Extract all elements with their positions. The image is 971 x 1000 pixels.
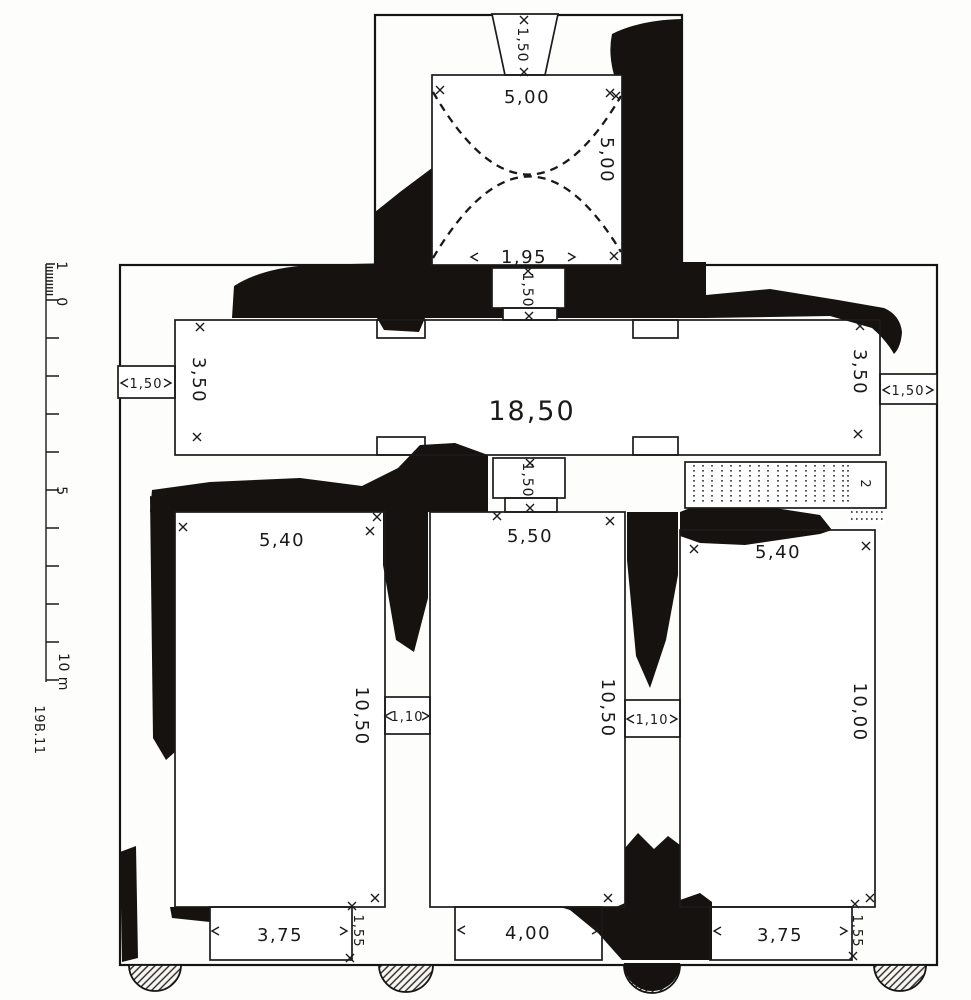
scale-label-0: 0 — [53, 297, 69, 306]
ruin-entrance-west-corner — [170, 907, 210, 922]
floor-plan-svg: 5,00 5,00 1,50 1,95 1,50 18,50 3,50 3,50… — [0, 0, 971, 1000]
dim-hall-width-w: 3,50 — [188, 357, 209, 403]
dim-room-c-length: 10,50 — [597, 678, 618, 737]
dim-tower-door: 1,50 — [519, 272, 535, 307]
plate-mark: 19B.11 — [31, 705, 46, 754]
ruin-buttress-s2 — [624, 963, 680, 991]
dim-tower-depth: 5,00 — [596, 137, 617, 183]
dim-entrance-c: 4,00 — [505, 923, 551, 944]
buttress-se — [874, 965, 926, 991]
dim-room-e-length: 10,00 — [849, 682, 870, 741]
room-center-void — [430, 512, 625, 907]
dim-room-e-width: 5,40 — [755, 542, 801, 563]
buttress-s1 — [379, 965, 433, 992]
dim-room-w-length: 10,50 — [351, 686, 372, 745]
dim-door-w-c: 1,10 — [391, 710, 424, 725]
ruin-north-wall — [232, 262, 706, 318]
dim-room-c-width: 5,50 — [507, 526, 553, 547]
dim-hall-width-e: 3,50 — [849, 349, 870, 395]
tower-door-step — [503, 308, 557, 320]
stair-landing-void — [848, 462, 886, 524]
buttress-sw — [129, 965, 181, 991]
scale-label-5: 5 — [53, 486, 69, 495]
scale-label-10m: 10 m — [55, 653, 71, 691]
room-east-void — [680, 530, 875, 907]
dim-room-w-width: 5,40 — [259, 530, 305, 551]
dim-door-c-e: 1,10 — [636, 713, 669, 728]
ruin-tower-west — [375, 168, 432, 264]
dim-stair-width: 2 — [857, 479, 872, 488]
ruin-wall-w-c — [383, 512, 428, 652]
dim-entrance-e-depth: 1,55 — [849, 915, 864, 948]
ruin-wall-c-e — [627, 512, 678, 688]
scale-bar: 1 0 5 10 m 19B.11 — [31, 261, 71, 754]
plan-page: 5,00 5,00 1,50 1,95 1,50 18,50 3,50 3,50… — [0, 0, 971, 1000]
ruin-southwest-strip — [120, 846, 138, 962]
dim-hall-length: 18,50 — [488, 396, 575, 427]
dim-tower-window: 1,50 — [514, 27, 530, 62]
scale-label-1: 1 — [53, 261, 69, 270]
dim-hall-door-w: 1,50 — [130, 377, 163, 392]
dim-hall-door-e: 1,50 — [892, 384, 925, 399]
ruin-west-wall — [150, 496, 175, 760]
hall-void — [175, 320, 880, 455]
dim-entrance-e: 3,75 — [757, 925, 803, 946]
dim-entrance-w-depth: 1,55 — [350, 915, 365, 948]
dim-hall-door-center: 1,50 — [519, 462, 535, 497]
dim-apse-span: 1,95 — [501, 247, 547, 268]
dim-tower-width: 5,00 — [504, 87, 550, 108]
dim-entrance-w: 3,75 — [257, 925, 303, 946]
